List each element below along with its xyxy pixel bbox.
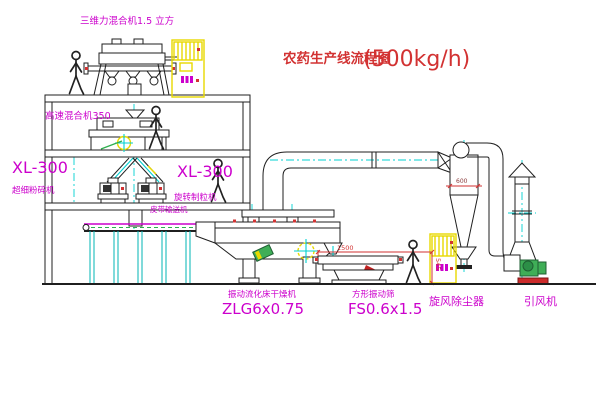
dim-sieve-height: 545 <box>434 258 442 270</box>
dim-sieve-length: 1500 <box>337 244 354 252</box>
label-belt-conveyor: 皮带输送机 <box>150 204 188 214</box>
page-title-capacity: (500kg/h) <box>363 47 470 72</box>
dim-cyclone: 600 <box>456 178 468 185</box>
induced-draft-fan <box>518 260 548 284</box>
label-granulator-name: 旋转制粒机 <box>174 192 217 203</box>
label-top-mixer: 三维力混合机1.5 立方 <box>80 15 174 27</box>
label-dryer-name: 振动流化床干燥机 <box>228 289 297 300</box>
pesticide-line-drawing: 三维力混合机1.5 立方 农药生产线流程图 (500kg/h) 高速混合机350… <box>0 0 600 403</box>
label-sieve-name: 方形振动筛 <box>352 289 395 300</box>
label-high-speed-mixer: 高速混合机350 <box>45 110 111 122</box>
label-dryer-model: ZLG6x0.75 <box>222 300 304 318</box>
label-fan: 引风机 <box>524 294 557 308</box>
label-cyclone: 旋风除尘器 <box>429 294 484 308</box>
mixer-funnels <box>105 71 161 85</box>
label-sieve-model: FS0.6x1.5 <box>348 300 422 318</box>
cad-flowchart-canvas: 三维力混合机1.5 立方 农药生产线流程图 (500kg/h) 高速混合机350… <box>0 0 600 403</box>
flange-dot <box>85 67 88 70</box>
label-granulator-model: XL-300 <box>177 162 233 181</box>
label-pulverizer-model: XL-300 <box>12 158 68 177</box>
label-pulverizer-name: 超细粉碎机 <box>12 185 55 196</box>
